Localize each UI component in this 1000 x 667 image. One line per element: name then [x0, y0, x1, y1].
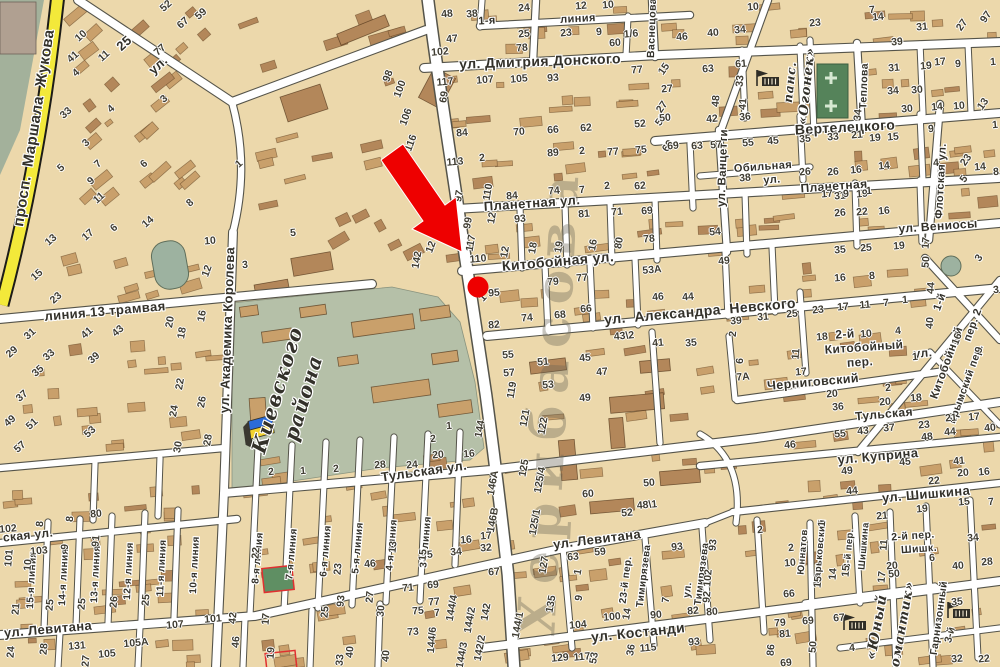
highlighted-building: [262, 565, 294, 592]
ogonek-grounds: [817, 64, 848, 118]
pond-small: [941, 256, 961, 276]
map-canvas[interactable]: Херибасова просп. Маршала Жуковаул.25лин…: [0, 0, 1000, 667]
corner-building: [0, 2, 36, 54]
base-map: [0, 0, 1000, 667]
